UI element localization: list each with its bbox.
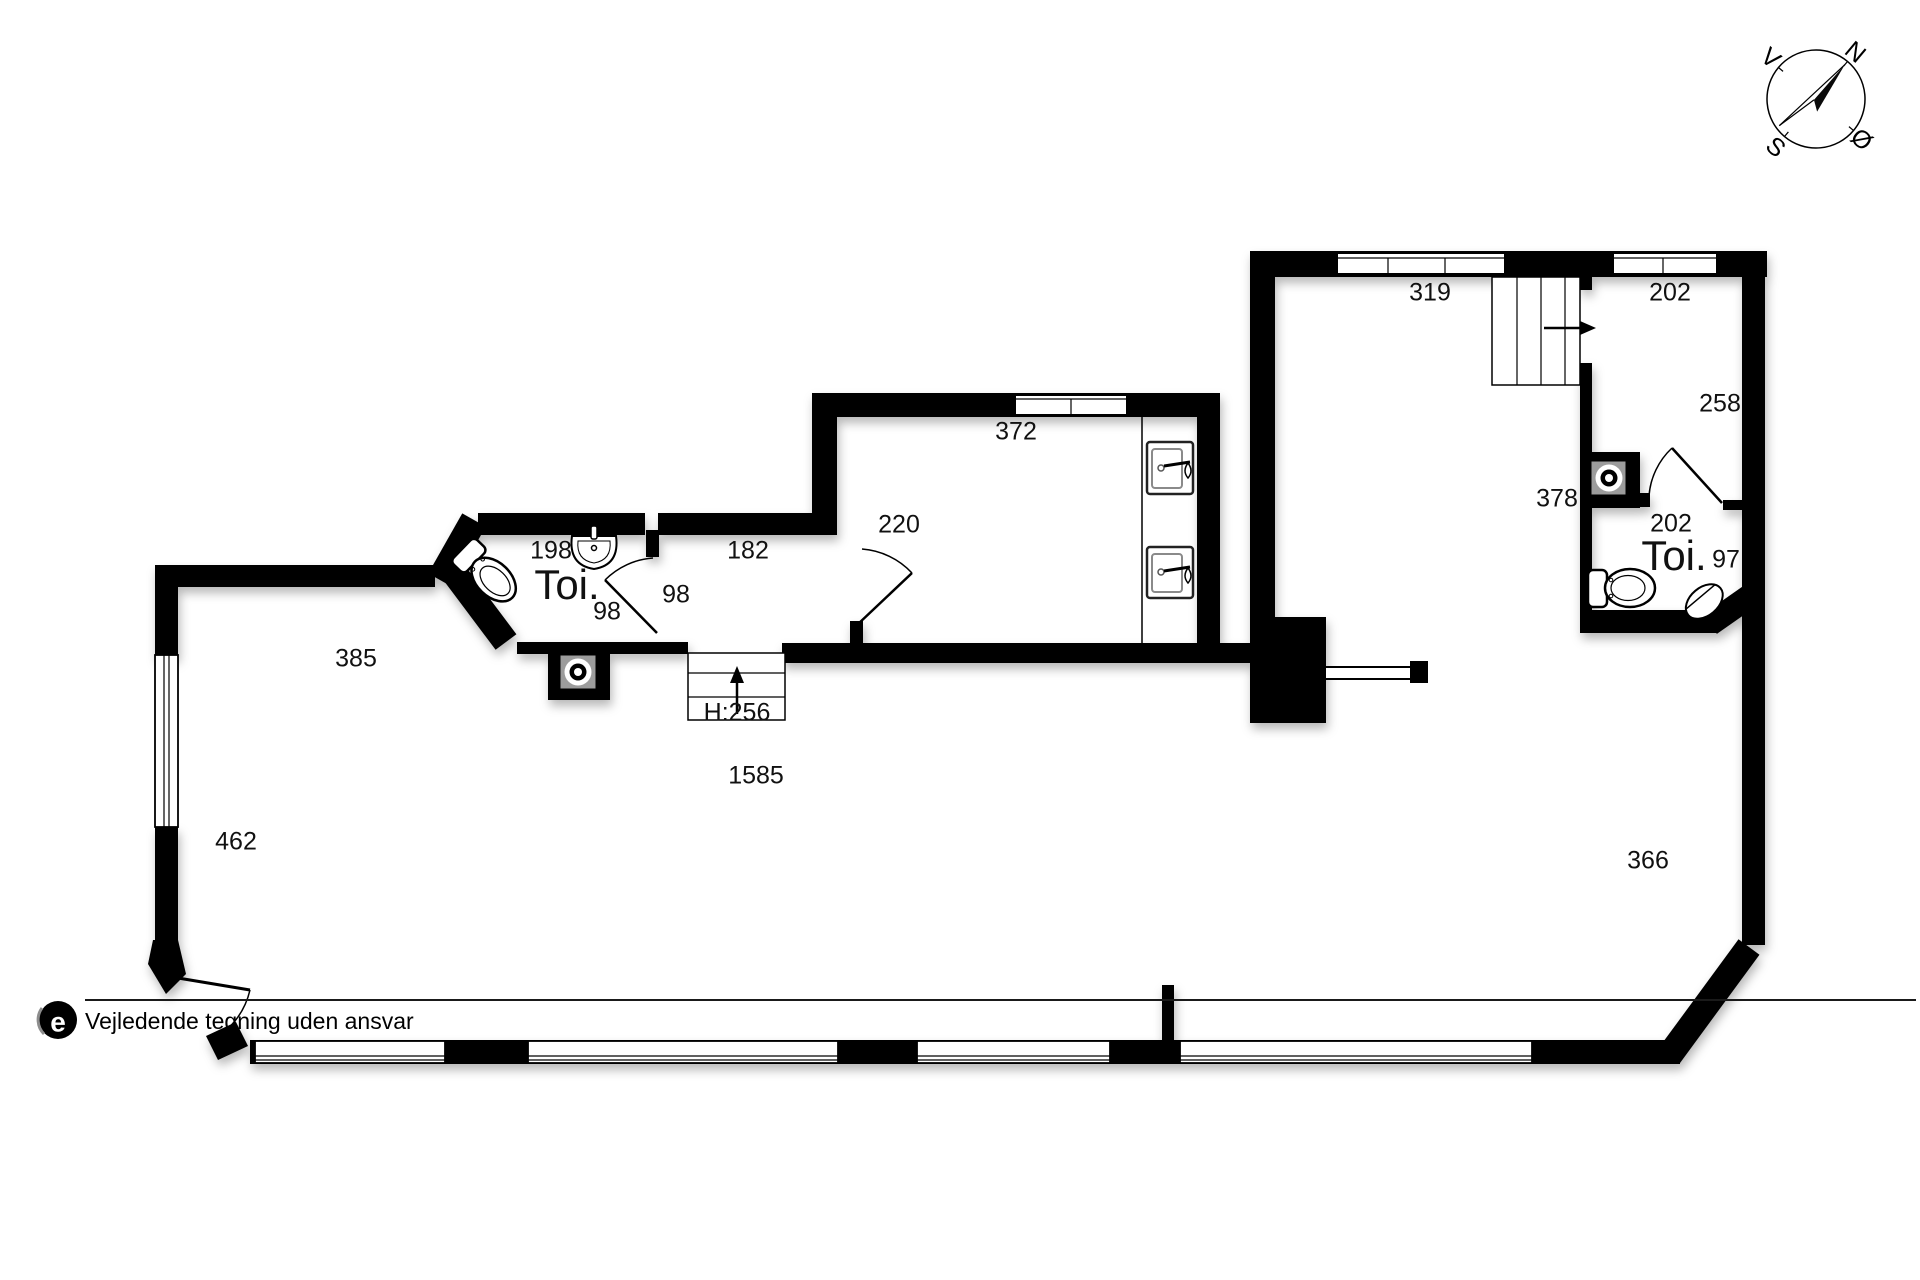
dim-label-97: 97: [1712, 546, 1740, 575]
stairs-arrow-head: [1580, 321, 1596, 335]
dim-label-378: 378: [1536, 485, 1578, 514]
compass-rose: N Ø S V: [1713, 0, 1918, 203]
dim-label-98-left: 98: [593, 598, 621, 627]
window-bottom-2: [528, 1041, 838, 1063]
stairs-upper: [1492, 277, 1596, 385]
logo-letter: e: [50, 1007, 66, 1038]
wall-column: [1250, 617, 1326, 723]
dim-label-220: 220: [878, 511, 920, 540]
compass-label-south: S: [1760, 131, 1791, 163]
logo: e: [38, 1001, 77, 1039]
wall-stub: [1162, 985, 1174, 1042]
compass-needle: [1809, 64, 1851, 112]
wall-door-stub: [646, 530, 659, 557]
door-hall-220: [857, 549, 912, 625]
room-label-toi-right: Toi.: [1641, 532, 1706, 580]
wall-chamfer: [1669, 947, 1749, 1056]
sliding-door-track: [1325, 661, 1428, 683]
wall-door-stub: [850, 621, 863, 645]
dim-label-462: 462: [215, 828, 257, 857]
sink-unit-2: [1147, 547, 1193, 598]
sink-counter: [1142, 417, 1193, 645]
dim-label-372: 372: [995, 418, 1037, 447]
dim-label-98-right: 98: [662, 581, 690, 610]
door-toilet-right: [1649, 448, 1722, 503]
window-top-b: [1613, 253, 1717, 274]
window-bottom-3: [917, 1041, 1110, 1063]
dim-label-202-top: 202: [1649, 279, 1691, 308]
footer-note: Vejledende tegning uden ansvar: [85, 1008, 414, 1035]
dim-label-366: 366: [1627, 847, 1669, 876]
sink-unit-1: [1147, 442, 1193, 494]
dim-label-258: 258: [1699, 390, 1741, 419]
drain-fixture-left: [560, 655, 596, 689]
window-top-a: [1337, 253, 1505, 274]
dim-label-h256: H:256: [704, 699, 771, 728]
dim-label-1585: 1585: [728, 762, 784, 791]
doors: [172, 448, 1722, 1032]
dim-label-182: 182: [727, 537, 769, 566]
window-left-wall: [155, 655, 178, 827]
compass-label-north: N: [1839, 36, 1871, 69]
wall-corner-tip: [148, 940, 186, 994]
room-label-toi-left: Toi.: [534, 561, 599, 609]
drain-fixture-right: [1591, 461, 1626, 495]
window-bottom-4: [1180, 1041, 1532, 1063]
floorplan-page: N Ø S V e 319 202 258 378 202 Toi. 97 37…: [0, 0, 1920, 1280]
dim-label-319: 319: [1409, 279, 1451, 308]
dim-label-385: 385: [335, 645, 377, 674]
floorplan-drawing: N Ø S V e: [0, 0, 1920, 1280]
window-sinkroom: [1015, 395, 1127, 415]
window-bottom-1: [255, 1041, 445, 1063]
